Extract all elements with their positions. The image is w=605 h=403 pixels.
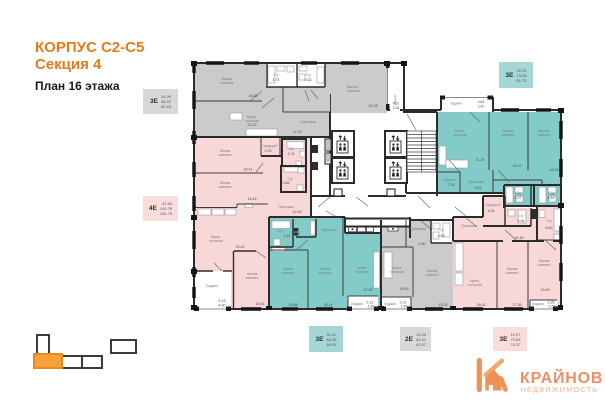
svg-text:Гардероб: Гардероб [442, 178, 457, 182]
svg-text:2.41: 2.41 [294, 231, 301, 235]
svg-text:комната: комната [246, 276, 259, 280]
svg-text:23.32: 23.32 [248, 123, 257, 127]
svg-text:Прихожая: Прихожая [321, 228, 337, 232]
svg-text:Гардероб: Гардероб [486, 203, 501, 207]
svg-text:гостиная: гостиная [468, 283, 482, 287]
svg-text:4.07: 4.07 [515, 196, 522, 200]
svg-text:Прихожая: Прихожая [300, 120, 316, 124]
svg-text:С/у: С/у [305, 73, 310, 77]
svg-text:2.03: 2.03 [265, 149, 272, 153]
svg-text:4.51: 4.51 [393, 102, 400, 106]
svg-text:НЕДВИЖИМОСТЬ: НЕДВИЖИМОСТЬ [521, 385, 599, 394]
svg-text:4.74: 4.74 [273, 78, 280, 82]
svg-text:18.01: 18.01 [477, 303, 486, 307]
svg-text:С/у: С/у [288, 147, 293, 151]
svg-text:гостиная: гостиная [390, 270, 404, 274]
svg-text:1.66: 1.66 [368, 305, 375, 309]
svg-text:4.90: 4.90 [419, 242, 426, 246]
svg-text:10.45: 10.45 [515, 236, 524, 240]
svg-text:4.74: 4.74 [288, 152, 295, 156]
svg-text:комната: комната [426, 273, 439, 277]
svg-text:комната: комната [502, 133, 515, 137]
svg-text:С/у: С/у [273, 73, 278, 77]
svg-text:гостиная: гостиная [209, 239, 223, 243]
svg-text:С/у: С/у [548, 191, 553, 195]
svg-text:4.60: 4.60 [219, 304, 226, 308]
svg-text:15.88: 15.88 [289, 303, 298, 307]
svg-text:3.62: 3.62 [305, 78, 312, 82]
svg-text:2.42: 2.42 [478, 105, 485, 109]
svg-text:2.26: 2.26 [393, 106, 400, 110]
svg-text:комната: комната [506, 271, 519, 275]
svg-text:9.53: 9.53 [475, 186, 482, 190]
svg-text:комната: комната [221, 81, 234, 85]
svg-text:4.61: 4.61 [284, 234, 291, 238]
svg-text:16.00: 16.00 [249, 94, 258, 98]
svg-text:3.46: 3.46 [518, 219, 525, 223]
svg-text:15.25: 15.25 [439, 303, 448, 307]
svg-text:13.69: 13.69 [541, 288, 550, 292]
svg-text:2.39: 2.39 [448, 183, 455, 187]
svg-text:спальня: спальня [347, 89, 360, 93]
svg-text:3.86: 3.86 [283, 181, 290, 185]
svg-text:комната: комната [319, 271, 332, 275]
svg-text:17.59: 17.59 [364, 288, 373, 292]
svg-text:1.66: 1.66 [401, 305, 408, 309]
svg-text:16.41: 16.41 [244, 168, 253, 172]
svg-text:15.14: 15.14 [324, 303, 333, 307]
svg-text:Лоджия: Лоджия [532, 302, 544, 306]
svg-text:С/у: С/у [438, 228, 443, 232]
svg-text:15.69: 15.69 [400, 287, 409, 291]
svg-text:С/у: С/у [518, 214, 523, 218]
svg-text:12.82: 12.82 [293, 210, 302, 214]
svg-text:Прихожая: Прихожая [410, 227, 426, 231]
svg-text:комната: комната [538, 263, 551, 267]
svg-text:Прихожая: Прихожая [278, 205, 294, 209]
svg-text:15.65: 15.65 [256, 302, 265, 306]
svg-text:4.64: 4.64 [548, 196, 555, 200]
svg-text:С/у: С/у [515, 191, 520, 195]
svg-text:21.20: 21.20 [476, 158, 485, 162]
svg-text:Лоджия: Лоджия [351, 302, 363, 306]
svg-text:18.29: 18.29 [550, 168, 559, 172]
svg-text:Лоджия: Лоджия [206, 284, 218, 288]
svg-text:29.44: 29.44 [236, 245, 245, 249]
svg-text:5.62: 5.62 [546, 226, 553, 230]
svg-text:комната: комната [282, 271, 295, 275]
svg-text:гостиная: гостиная [355, 270, 369, 274]
svg-text:С/у: С/у [277, 229, 282, 233]
svg-text:спальня: спальня [538, 133, 551, 137]
svg-text:4.06: 4.06 [488, 209, 495, 213]
svg-text:Лоджия: Лоджия [384, 302, 396, 306]
svg-text:4.84: 4.84 [478, 100, 485, 104]
svg-text:комната: комната [219, 185, 232, 189]
svg-text:гостиная: гостиная [453, 133, 467, 137]
svg-text:12.75: 12.75 [293, 130, 302, 134]
svg-text:4.56: 4.56 [438, 234, 445, 238]
svg-text:С/у: С/у [546, 219, 551, 223]
svg-text:Прихожая: Прихожая [468, 180, 484, 184]
svg-text:1.69: 1.69 [549, 305, 556, 309]
svg-text:Лоджия: Лоджия [450, 102, 462, 106]
svg-text:17.36: 17.36 [513, 303, 522, 307]
svg-text:комната: комната [219, 153, 232, 157]
svg-text:Гардероб: Гардероб [263, 144, 278, 148]
svg-text:16.67: 16.67 [513, 164, 522, 168]
svg-text:25.18: 25.18 [369, 104, 378, 108]
svg-text:9.19: 9.19 [219, 299, 226, 303]
svg-text:15.46: 15.46 [248, 197, 257, 201]
svg-text:Прихожая: Прихожая [461, 224, 477, 228]
